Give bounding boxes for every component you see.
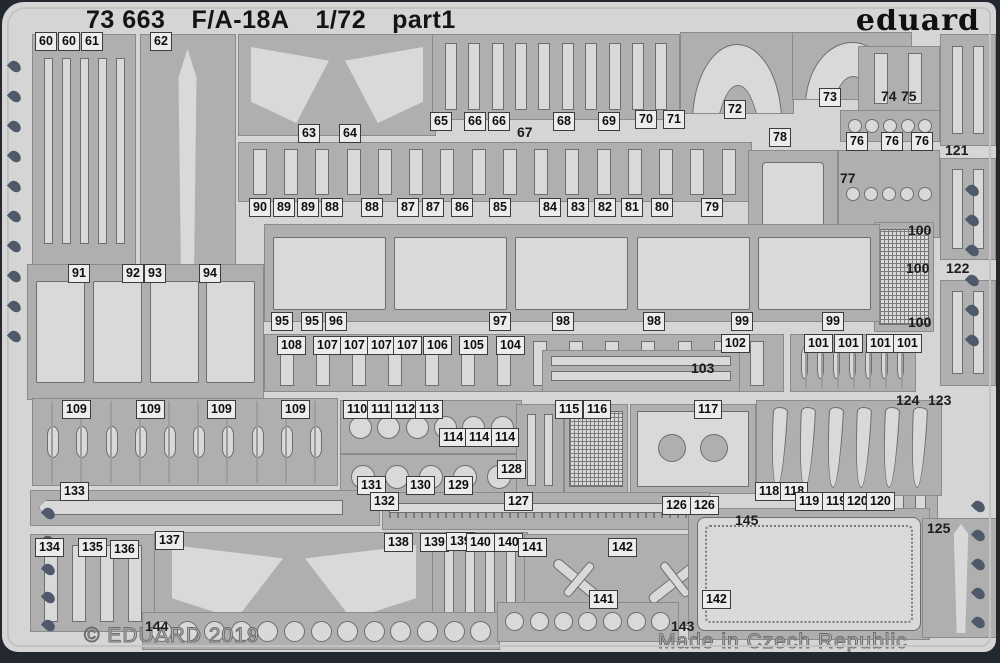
part-number-label: 124: [893, 392, 922, 408]
part-number-label: 144: [142, 618, 171, 634]
bay-hole: [700, 434, 728, 462]
part-shape: [253, 149, 267, 195]
part-number-label: 60: [35, 32, 57, 51]
bay-hole: [658, 434, 686, 462]
part-shape: [627, 612, 646, 631]
part-shape: [39, 500, 343, 515]
sheet-hole: [7, 208, 23, 224]
part-shape: [864, 187, 878, 201]
part-shape: [47, 426, 59, 458]
scale-label: 1/72: [315, 6, 366, 34]
part-number-label: 100: [903, 260, 932, 276]
part-shape: [168, 401, 170, 483]
fret-panel: [497, 602, 679, 642]
part-shape: [106, 426, 118, 458]
part-shape: [879, 229, 929, 325]
part-shape: [918, 187, 932, 201]
part-label-title: part1: [392, 6, 456, 34]
part-shape: [952, 291, 963, 374]
part-number-label: 128: [497, 460, 526, 479]
part-shape: [281, 426, 293, 458]
sheet-hole: [7, 58, 23, 74]
fret-panel: [432, 34, 680, 120]
part-number-label: 104: [496, 336, 525, 355]
part-shape: [80, 58, 89, 244]
part-number-label: 145: [732, 512, 761, 528]
part-shape: [394, 237, 507, 310]
fret-panel: [382, 492, 710, 530]
part-shape: [659, 149, 673, 195]
part-shape: [505, 612, 524, 631]
part-shape: [62, 58, 71, 244]
part-shape: [472, 149, 486, 195]
part-number-label: 101: [804, 334, 833, 353]
part-shape: [534, 149, 548, 195]
part-number-label: 142: [608, 538, 637, 557]
part-number-label: 100: [905, 314, 934, 330]
part-number-label: 93: [144, 264, 166, 283]
part-shape: [909, 407, 928, 488]
part-number-label: 81: [621, 198, 643, 217]
part-number-label: 103: [688, 360, 717, 376]
part-number-label: 70: [635, 110, 657, 129]
part-number-label: 98: [552, 312, 574, 331]
sheet-hole: [971, 498, 987, 514]
part-number-label: 105: [459, 336, 488, 355]
part-number-label: 132: [370, 492, 399, 511]
part-shape: [565, 149, 579, 195]
part-shape: [98, 58, 107, 244]
part-shape: [637, 411, 749, 487]
part-number-label: 107: [393, 336, 422, 355]
sheet-hole: [7, 88, 23, 104]
copyright-text: © EDUARD 2019: [84, 624, 260, 648]
part-number-label: 143: [668, 618, 697, 634]
part-number-label: 109: [281, 400, 310, 419]
part-number-label: 66: [464, 112, 486, 131]
part-shape: [445, 43, 457, 110]
part-shape: [440, 149, 454, 195]
part-number-label: 117: [694, 400, 722, 419]
sheet-hole: [7, 118, 23, 134]
fret-panel: [27, 264, 264, 400]
part-shape: [943, 524, 979, 633]
fret-panel: [238, 34, 436, 136]
part-number-label: 109: [207, 400, 236, 419]
part-number-label: 72: [724, 100, 746, 119]
part-number-label: 89: [297, 198, 319, 217]
part-number-label: 135: [78, 538, 107, 557]
part-shape: [901, 119, 915, 133]
part-number-label: 109: [62, 400, 91, 419]
part-shape: [256, 401, 258, 483]
part-shape: [527, 414, 536, 486]
part-number-label: 101: [866, 334, 895, 353]
part-number-label: 109: [136, 400, 165, 419]
part-shape: [865, 119, 879, 133]
part-shape: [637, 237, 750, 310]
part-number-label: 141: [589, 590, 618, 609]
part-shape: [603, 612, 622, 631]
part-shape: [762, 162, 824, 229]
aircraft-name: F/A-18A: [191, 6, 289, 34]
part-number-label: 62: [150, 32, 172, 51]
part-number-label: 127: [504, 492, 533, 511]
part-number-label: 119: [795, 492, 823, 511]
sheet-hole: [7, 178, 23, 194]
part-number-label: 106: [423, 336, 452, 355]
part-shape: [609, 43, 621, 110]
sheet-hole: [7, 148, 23, 164]
part-shape: [544, 414, 553, 486]
part-shape: [465, 543, 475, 620]
part-shape: [197, 401, 199, 483]
part-number-label: 96: [325, 312, 347, 331]
part-shape: [51, 401, 53, 483]
part-shape: [193, 426, 205, 458]
part-shape: [853, 407, 872, 488]
part-shape: [848, 119, 862, 133]
part-shape: [468, 43, 480, 110]
part-shape: [345, 47, 423, 123]
part-shape: [135, 426, 147, 458]
part-number-label: 94: [199, 264, 221, 283]
fret-panel: [688, 508, 930, 640]
part-number-label: 71: [663, 110, 685, 129]
part-number-label: 95: [271, 312, 293, 331]
part-number-label: 78: [769, 128, 791, 147]
part-shape: [390, 621, 411, 642]
part-shape: [628, 149, 642, 195]
part-shape: [750, 341, 764, 386]
part-number-label: 74: [878, 88, 900, 104]
part-shape: [417, 621, 438, 642]
part-shape: [409, 149, 423, 195]
part-number-label: 82: [594, 198, 616, 217]
part-number-label: 67: [514, 124, 536, 140]
part-shape: [110, 401, 112, 483]
part-number-label: 99: [822, 312, 844, 331]
part-shape: [93, 281, 142, 383]
part-number-label: 75: [898, 88, 920, 104]
part-shape: [492, 43, 504, 110]
part-shape: [690, 149, 704, 195]
part-number-label: 87: [422, 198, 444, 217]
part-shape: [655, 43, 667, 110]
part-shape: [632, 43, 644, 110]
fret-panel: [238, 142, 752, 202]
scanned-pe-fret-image: { "header": { "catalog": "73 663", "airc…: [0, 0, 1000, 663]
part-shape: [470, 621, 491, 642]
part-number-label: 99: [731, 312, 753, 331]
part-shape: [973, 169, 984, 249]
part-shape: [882, 187, 896, 201]
part-number-label: 69: [598, 112, 620, 131]
part-shape: [305, 545, 416, 619]
part-number-label: 91: [68, 264, 90, 283]
rivet-line: [705, 525, 913, 623]
part-number-label: 63: [298, 124, 320, 143]
part-number-label: 126: [662, 496, 691, 515]
part-number-label: 97: [489, 312, 511, 331]
part-shape: [206, 281, 255, 383]
part-shape: [530, 612, 549, 631]
part-number-label: 79: [701, 198, 723, 217]
part-number-label: 89: [273, 198, 295, 217]
part-shape: [150, 281, 199, 383]
part-shape: [311, 621, 332, 642]
part-number-label: 87: [397, 198, 419, 217]
part-number-label: 100: [905, 222, 934, 238]
part-shape: [406, 416, 429, 439]
part-shape: [164, 426, 176, 458]
part-shape: [172, 545, 283, 619]
part-number-label: 123: [925, 392, 954, 408]
part-number-label: 118: [755, 482, 783, 501]
part-shape: [883, 119, 897, 133]
part-number-label: 130: [406, 476, 435, 495]
part-number-label: 134: [35, 538, 64, 557]
part-shape: [389, 513, 703, 518]
catalog-number: 73 663: [86, 6, 165, 34]
part-number-label: 64: [339, 124, 361, 143]
part-shape: [284, 621, 305, 642]
part-number-label: 73: [819, 88, 841, 107]
part-number-label: 126: [690, 496, 719, 515]
part-number-label: 121: [942, 142, 971, 158]
part-number-label: 114: [491, 428, 519, 447]
part-number-label: 142: [702, 590, 731, 609]
part-shape: [76, 426, 88, 458]
part-number-label: 107: [313, 336, 342, 355]
part-number-label: 136: [110, 540, 139, 559]
part-number-label: 116: [583, 400, 611, 419]
photo-etch-fret-sheet: 73 663F/A-18A1/72part1 eduard 6060616263…: [2, 2, 996, 652]
part-number-label: 133: [60, 482, 89, 501]
part-number-label: 65: [430, 112, 452, 131]
part-number-label: 68: [553, 112, 575, 131]
part-shape: [337, 621, 358, 642]
fret-panel: [940, 34, 996, 146]
part-shape: [722, 149, 736, 195]
part-shape: [349, 416, 372, 439]
part-shape: [364, 621, 385, 642]
part-number-label: 120: [866, 492, 895, 511]
fret-panel: [32, 34, 136, 268]
part-shape: [347, 149, 361, 195]
part-number-label: 101: [834, 334, 863, 353]
sheet-hole: [7, 298, 23, 314]
part-shape: [585, 43, 597, 110]
part-shape: [597, 149, 611, 195]
part-number-label: 129: [444, 476, 473, 495]
sheet-hole: [7, 328, 23, 344]
part-shape: [758, 237, 871, 310]
part-number-label: 115: [555, 400, 583, 419]
part-number-label: 86: [451, 198, 473, 217]
part-shape: [377, 416, 400, 439]
part-shape: [485, 543, 495, 620]
part-shape: [769, 407, 788, 488]
part-number-label: 88: [321, 198, 343, 217]
part-shape: [36, 281, 85, 383]
part-number-label: 60: [58, 32, 80, 51]
part-shape: [310, 426, 322, 458]
part-number-label: 80: [651, 198, 673, 217]
fret-panel: [264, 224, 880, 322]
part-shape: [569, 411, 623, 487]
part-number-label: 107: [340, 336, 369, 355]
part-shape: [222, 426, 234, 458]
part-number-label: 125: [924, 520, 953, 536]
part-shape: [846, 187, 860, 201]
sheet-hole: [7, 238, 23, 254]
fret-panel: [630, 404, 756, 494]
part-number-label: 98: [643, 312, 665, 331]
part-shape: [444, 621, 465, 642]
part-shape: [252, 426, 264, 458]
part-number-label: 61: [81, 32, 103, 51]
part-number-label: 141: [518, 538, 547, 557]
part-shape: [918, 119, 932, 133]
part-number-label: 107: [367, 336, 396, 355]
part-shape: [697, 517, 921, 631]
fret-title: 73 663F/A-18A1/72part1: [86, 6, 482, 35]
part-number-label: 66: [488, 112, 510, 131]
part-shape: [538, 43, 550, 110]
part-number-label: 113: [415, 400, 443, 419]
part-number-label: 139: [420, 533, 449, 552]
part-shape: [797, 407, 816, 488]
part-number-label: 88: [361, 198, 383, 217]
part-number-label: 138: [384, 533, 413, 552]
part-shape: [284, 149, 298, 195]
part-shape: [257, 621, 278, 642]
part-shape: [314, 401, 316, 483]
part-number-label: 114: [465, 428, 493, 447]
part-number-label: 122: [943, 260, 972, 276]
part-shape: [116, 58, 125, 244]
part-shape: [973, 46, 984, 134]
part-number-label: 76: [846, 132, 868, 151]
part-shape: [44, 58, 53, 244]
part-shape: [578, 612, 597, 631]
part-number-label: 77: [837, 170, 859, 186]
part-number-label: 102: [721, 334, 750, 353]
part-shape: [315, 149, 329, 195]
part-shape: [378, 149, 392, 195]
part-shape: [952, 169, 963, 249]
part-number-label: 83: [567, 198, 589, 217]
part-shape: [515, 43, 527, 110]
part-number-label: 95: [301, 312, 323, 331]
part-shape: [973, 291, 984, 374]
part-shape: [251, 47, 329, 123]
part-number-label: 84: [539, 198, 561, 217]
part-number-label: 90: [249, 198, 271, 217]
part-number-label: 101: [893, 334, 922, 353]
part-shape: [825, 407, 844, 488]
part-number-label: 85: [489, 198, 511, 217]
part-shape: [444, 543, 454, 620]
part-shape: [562, 43, 574, 110]
part-shape: [881, 407, 900, 488]
part-number-label: 140: [466, 533, 495, 552]
part-shape: [515, 237, 628, 310]
part-number-label: 108: [277, 336, 306, 355]
part-shape: [900, 187, 914, 201]
part-shape: [273, 237, 386, 310]
part-number-label: 114: [439, 428, 467, 447]
part-shape: [389, 503, 703, 513]
part-number-label: 76: [911, 132, 933, 151]
fret-panel: [940, 280, 996, 386]
part-shape: [503, 149, 517, 195]
part-shape: [554, 612, 573, 631]
part-number-label: 76: [881, 132, 903, 151]
part-number-label: 92: [122, 264, 144, 283]
sheet-hole: [7, 268, 23, 284]
part-number-label: 137: [155, 531, 184, 550]
part-shape: [952, 46, 963, 134]
